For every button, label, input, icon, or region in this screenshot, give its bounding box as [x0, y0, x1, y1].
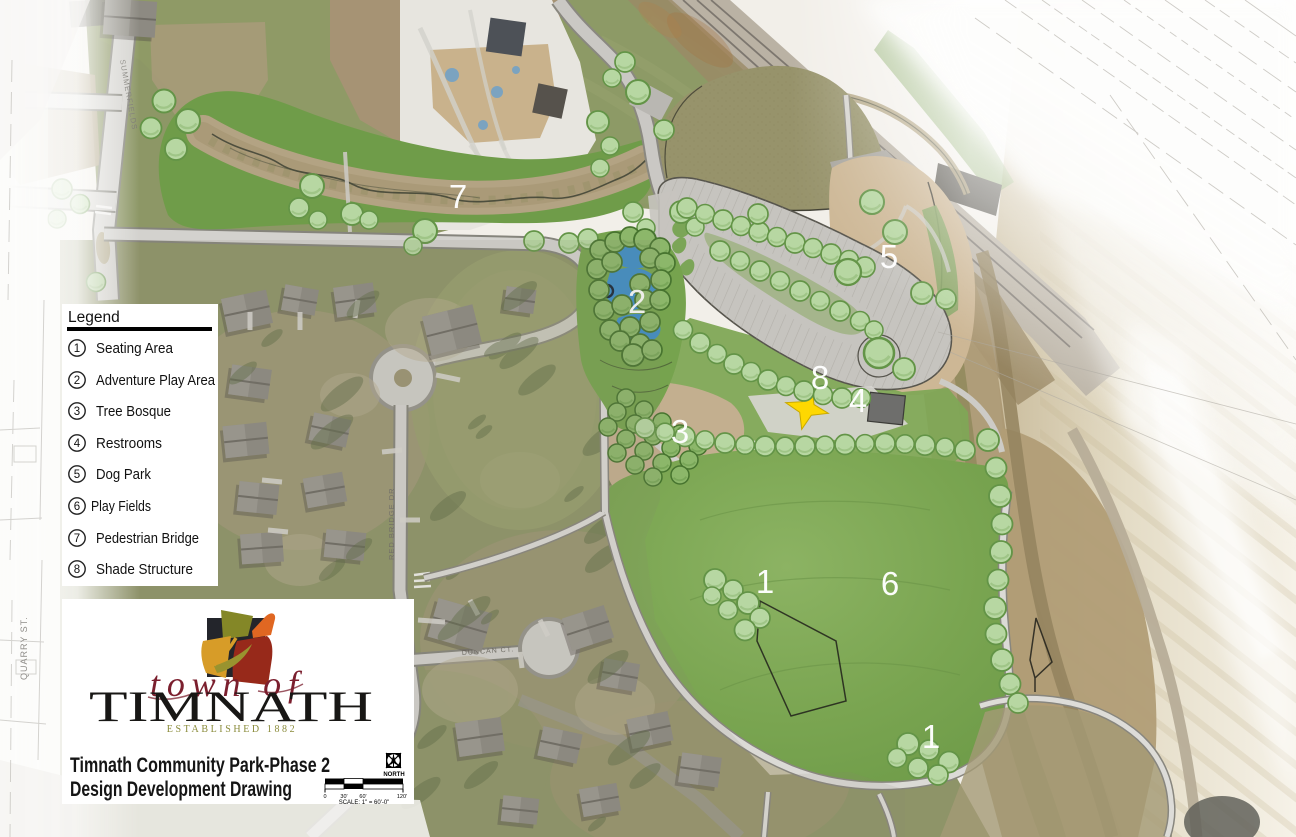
- svg-text:Design Development Drawing: Design Development Drawing: [70, 778, 292, 801]
- svg-text:0: 0: [323, 794, 326, 800]
- svg-text:Restrooms: Restrooms: [96, 435, 162, 452]
- svg-text:Seating Area: Seating Area: [96, 340, 174, 357]
- svg-text:Dog Park: Dog Park: [96, 466, 151, 483]
- svg-text:7: 7: [449, 178, 467, 215]
- svg-text:Legend: Legend: [68, 309, 120, 326]
- svg-text:1: 1: [74, 343, 80, 355]
- svg-text:NORTH: NORTH: [383, 772, 404, 778]
- svg-text:Shade Structure: Shade Structure: [96, 561, 193, 578]
- svg-text:Adventure Play Area: Adventure Play Area: [96, 372, 216, 389]
- svg-text:8: 8: [74, 564, 80, 576]
- svg-text:QUARRY ST.: QUARRY ST.: [19, 616, 29, 680]
- svg-text:7: 7: [74, 533, 80, 545]
- svg-text:6: 6: [74, 501, 80, 513]
- svg-text:SCALE: 1" = 60'-0": SCALE: 1" = 60'-0": [339, 800, 390, 806]
- svg-text:5: 5: [74, 469, 80, 481]
- svg-text:Timnath Community Park-Phase 2: Timnath Community Park-Phase 2: [70, 754, 330, 777]
- svg-text:3: 3: [74, 406, 80, 418]
- svg-text:Play Fields: Play Fields: [91, 498, 151, 515]
- svg-text:ESTABLISHED 1882: ESTABLISHED 1882: [167, 724, 298, 735]
- svg-text:Pedestrian Bridge: Pedestrian Bridge: [96, 530, 199, 547]
- svg-text:2: 2: [74, 375, 80, 387]
- svg-text:120': 120': [397, 794, 407, 800]
- svg-text:4: 4: [74, 438, 81, 450]
- svg-text:Tree Bosque: Tree Bosque: [96, 403, 171, 420]
